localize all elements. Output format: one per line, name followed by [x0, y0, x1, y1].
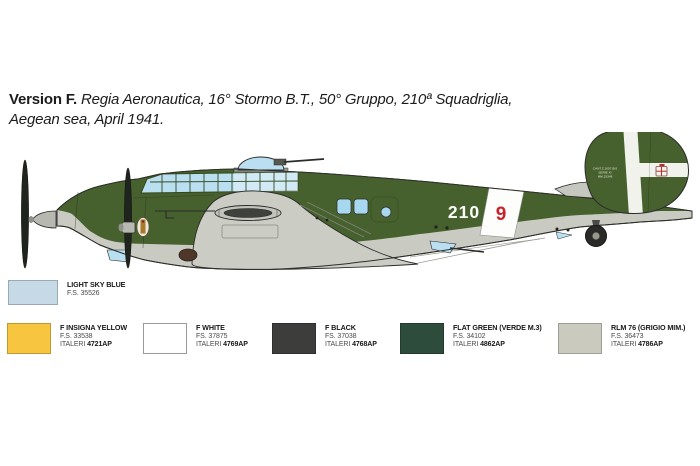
caption-line1: Version F. Regia Aeronautica, 16° Stormo… [9, 90, 669, 110]
paint-italeri-code: ITALERI 4769AP [196, 341, 248, 350]
paint-name: F BLACK [325, 324, 377, 333]
paint-name: F INSIGNA YELLOW [60, 324, 127, 333]
swatch-flat-green: FLAT GREEN (VERDE M.3) F.S. 34102 ITALER… [400, 323, 542, 354]
fairing-vent [215, 206, 281, 221]
caption-line1-text: Regia Aeronautica, 16° Stormo B.T., 50° … [81, 91, 512, 108]
exhaust [179, 249, 197, 261]
swatch-label: FLAT GREEN (VERDE M.3) F.S. 34102 ITALER… [453, 323, 542, 350]
paint-chip-black [272, 323, 316, 354]
paint-chip-white [143, 323, 187, 354]
swatch-rlm76: RLM 76 (GRIGIO MIM.) F.S. 36473 ITALERI … [558, 323, 685, 354]
paint-fs-code: FS. 37875 [196, 333, 248, 342]
fuselage-code: 210 [448, 202, 480, 222]
paint-chip-insigna-yellow [7, 323, 51, 354]
version-label: Version F. [9, 91, 77, 108]
aircraft-profile-illustration: 210 9 CANT.Z.1007 BIS SERIE XI MM.23348 [0, 132, 700, 280]
paint-italeri-code: ITALERI 4862AP [453, 341, 542, 350]
version-caption: Version F. Regia Aeronautica, 16° Stormo… [9, 90, 669, 129]
paint-fs-code: FS. 37038 [325, 333, 377, 342]
paint-name: F WHITE [196, 324, 248, 333]
squadron-emblem [137, 218, 149, 237]
page: Version F. Regia Aeronautica, 16° Stormo… [0, 0, 700, 466]
swatch-label: F WHITE FS. 37875 ITALERI 4769AP [196, 323, 248, 350]
paint-fs-code: F.S. 34102 [453, 333, 542, 342]
paint-fs-code: F.S. 35526 [67, 290, 125, 299]
swatch-white: F WHITE FS. 37875 ITALERI 4769AP [143, 323, 248, 354]
caption-line2: Aegean sea, April 1941. [9, 110, 669, 130]
swatch-label: F BLACK FS. 37038 ITALERI 4768AP [325, 323, 377, 350]
paint-italeri-code: ITALERI 4721AP [60, 341, 127, 350]
paint-name: FLAT GREEN (VERDE M.3) [453, 324, 542, 333]
swatch-light-sky-blue: LIGHT SKY BLUE F.S. 35526 [8, 280, 125, 305]
paint-fs-code: F.S. 36473 [611, 333, 685, 342]
swatch-label: RLM 76 (GRIGIO MIM.) F.S. 36473 ITALERI … [611, 323, 685, 350]
nose-spinner [33, 211, 57, 228]
swatch-black: F BLACK FS. 37038 ITALERI 4768AP [272, 323, 377, 354]
wing-prop-hub [122, 222, 135, 233]
swatch-label: LIGHT SKY BLUE F.S. 35526 [67, 280, 125, 298]
swatch-insigna-yellow: F INSIGNA YELLOW F.S. 33538 ITALERI 4721… [7, 323, 127, 354]
paint-name: LIGHT SKY BLUE [67, 281, 125, 290]
paint-italeri-code: ITALERI 4786AP [611, 341, 685, 350]
paint-italeri-code: ITALERI 4768AP [325, 341, 377, 350]
cockpit-canopy [141, 172, 298, 193]
paint-chip-rlm76 [558, 323, 602, 354]
paint-fs-code: F.S. 33538 [60, 333, 127, 342]
squadriglia-number: 9 [496, 204, 507, 225]
paint-chip-flat-green [400, 323, 444, 354]
paint-name: RLM 76 (GRIGIO MIM.) [611, 324, 685, 333]
nose-propeller [21, 160, 56, 268]
aircraft-svg: 210 9 CANT.Z.1007 BIS SERIE XI MM.23348 [0, 132, 700, 280]
paint-chip-light-sky-blue [8, 280, 58, 305]
fin-stencil-line3: MM.23348 [598, 175, 613, 179]
swatch-label: F INSIGNA YELLOW F.S. 33538 ITALERI 4721… [60, 323, 127, 350]
turret-gun-barrel [284, 159, 324, 162]
